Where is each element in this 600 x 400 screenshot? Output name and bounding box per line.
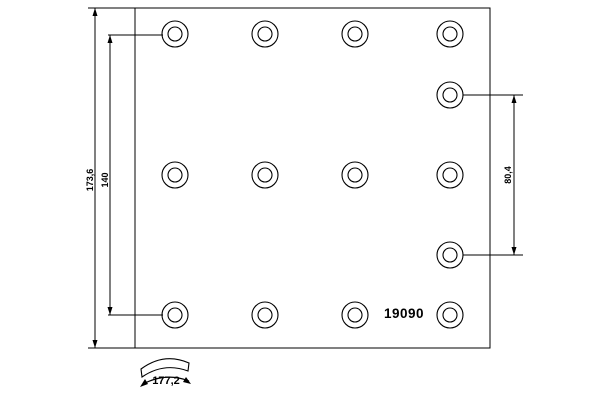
rivet-hole-outer [437,162,463,188]
dimension-label-right-hole-span: 80,4 [503,157,513,193]
dimension-arrow [93,340,98,348]
rivet-hole-inner [443,248,457,262]
rivet-hole-outer [162,21,188,47]
rivet-hole-outer [162,302,188,328]
rivet-hole-outer [437,242,463,268]
rivet-hole-inner [258,27,272,41]
brake-lining-drawing [0,0,600,400]
dimension-arrow [93,8,98,16]
part-number-label: 19090 [382,306,426,321]
rivet-hole-inner [443,27,457,41]
rivet-hole-outer [252,162,278,188]
rivet-hole-inner [443,88,457,102]
lining-plate-outline [135,8,490,348]
rivet-hole-outer [437,82,463,108]
dimension-arrow [512,95,517,103]
rivet-hole-inner [348,27,362,41]
rivet-hole-inner [443,308,457,322]
rivet-hole-outer [252,21,278,47]
rivet-hole-inner [258,308,272,322]
rivet-hole-outer [437,21,463,47]
dimension-label-hole-span-vertical: 140 [100,163,110,197]
rivet-hole-inner [443,168,457,182]
rivet-hole-outer [162,162,188,188]
dimension-label-arc-width: 177,2 [146,375,186,387]
dimension-arrow [108,307,113,315]
rivet-hole-inner [258,168,272,182]
rivet-hole-inner [348,168,362,182]
technical-drawing-canvas: 173,6 140 80,4 177,2 19090 [0,0,600,400]
dimension-arrow [512,247,517,255]
rivet-hole-inner [168,308,182,322]
rivet-hole-outer [437,302,463,328]
rivet-hole-inner [168,168,182,182]
rivet-hole-outer [342,302,368,328]
rivet-hole-inner [168,27,182,41]
rivet-hole-outer [342,162,368,188]
dimension-label-total-height: 173,6 [85,161,95,199]
rivet-hole-outer [252,302,278,328]
rivet-hole-outer [342,21,368,47]
rivet-hole-inner [348,308,362,322]
dimension-arrow [108,35,113,43]
